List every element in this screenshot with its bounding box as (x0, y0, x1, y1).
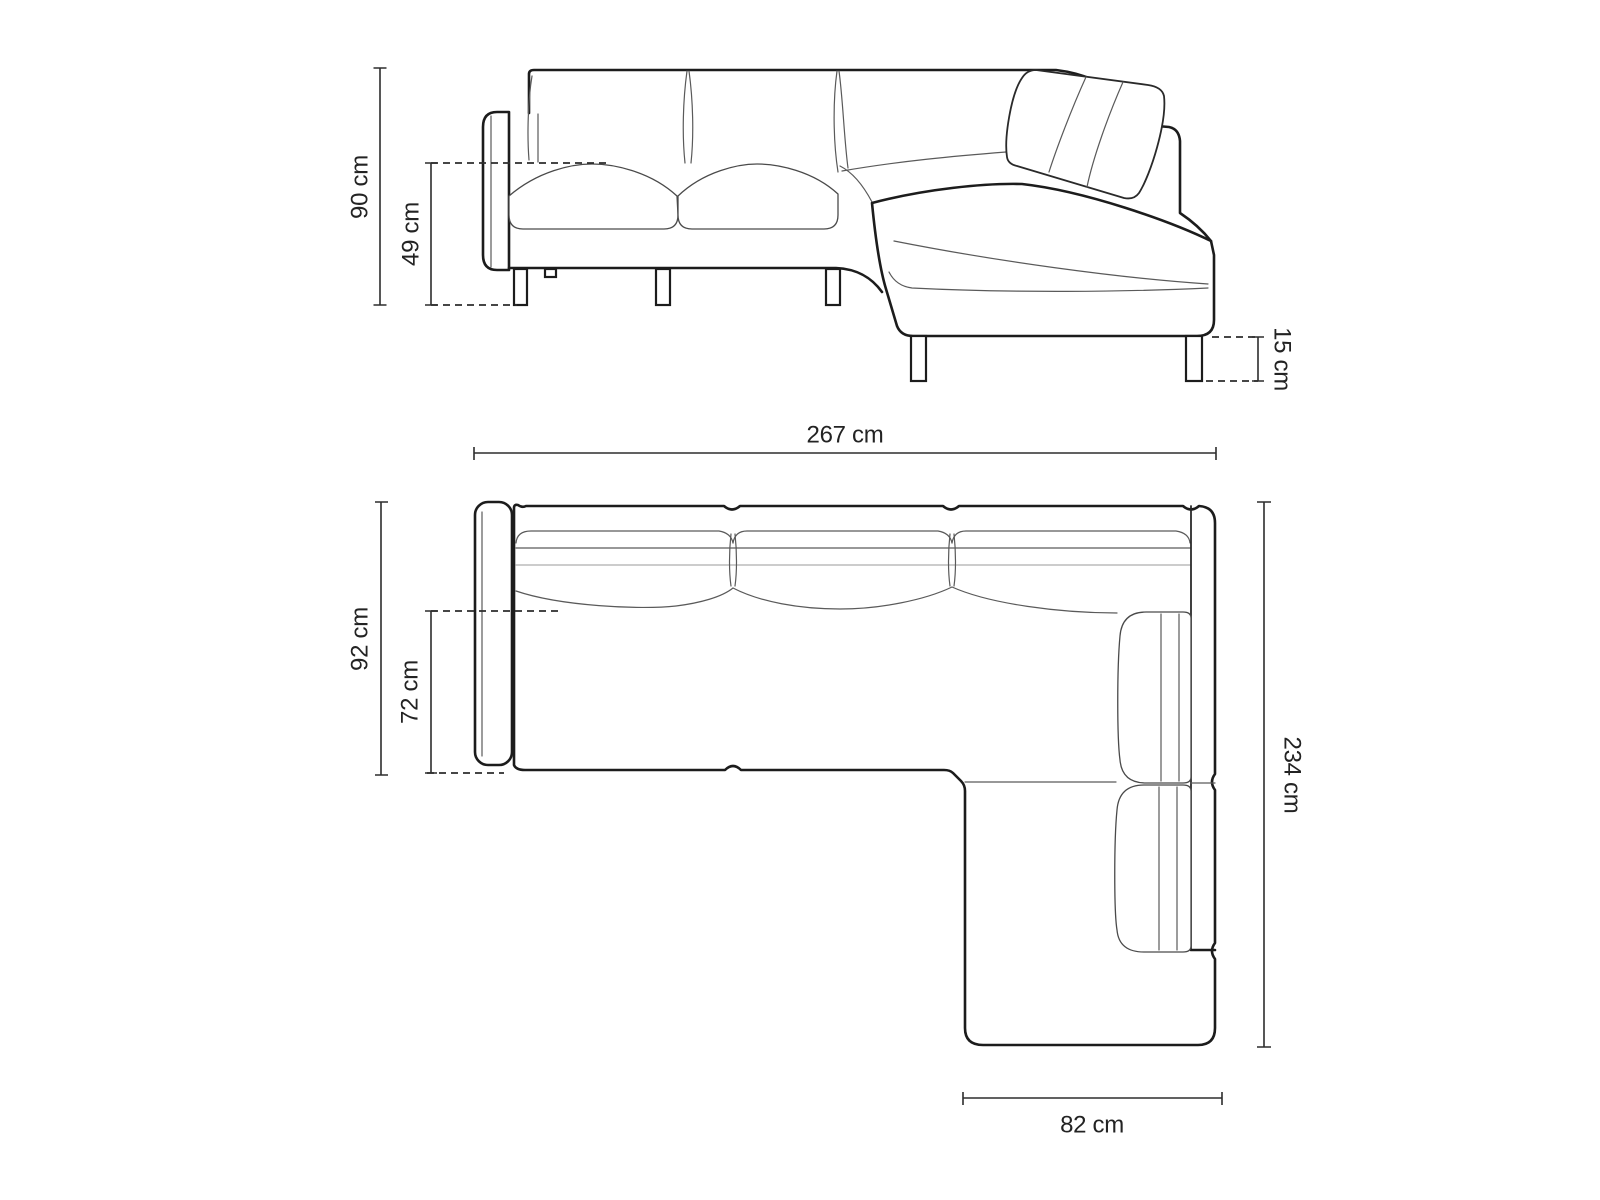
dimension-line (474, 447, 1216, 460)
dimension-label-seat-height: 49 cm (397, 202, 424, 266)
diagram-canvas: 90 cm 49 cm 15 cm 267 cm 92 cm 72 cm 234… (0, 0, 1600, 1200)
front-back-cushion-divider (834, 71, 838, 172)
top-body-outline (514, 505, 1215, 1045)
front-leg (826, 269, 840, 305)
top-back-cushion-front (516, 588, 733, 607)
dimension-line (1252, 337, 1264, 381)
front-corner-deck-curve (840, 166, 872, 202)
front-seat-cushion-middle (678, 164, 838, 229)
top-back-cushion-top (952, 531, 1190, 543)
dimension-label-leg-height: 15 cm (1269, 327, 1296, 391)
dimension-label-total-height: 90 cm (346, 155, 373, 219)
dimension-label-chaise-width: 82 cm (1060, 1111, 1124, 1138)
dimension-label-seat-depth: 72 cm (396, 660, 423, 724)
front-leg (514, 269, 527, 305)
front-view (483, 70, 1214, 381)
top-chaise-back-cushion (1115, 785, 1191, 952)
dimension-label-side-depth: 92 cm (346, 607, 373, 671)
dimension-line (1257, 502, 1271, 1047)
top-left-armrest (475, 502, 512, 765)
top-back-cushion-divider (730, 534, 732, 586)
dimension-top-total-width: 267 cm (474, 421, 1216, 460)
top-back-cushion-divider (954, 534, 956, 586)
dimension-line (425, 611, 437, 773)
front-corner-deck-curve (842, 152, 1006, 171)
front-back-pillow (1006, 70, 1164, 198)
dimension-line (374, 68, 387, 305)
sofa-dimension-diagram: 90 cm 49 cm 15 cm 267 cm 92 cm 72 cm 234… (0, 0, 1600, 1200)
front-back-cushion-divider (683, 71, 687, 163)
front-seat-cushion-left (509, 164, 678, 229)
top-back-cushion-top (516, 531, 733, 543)
front-back-cushion-divider (839, 71, 848, 168)
dimension-front-total-height: 90 cm (346, 68, 386, 305)
front-rear-leg (545, 269, 556, 277)
top-back-cushion-front (733, 587, 952, 609)
dimension-front-leg-height: 15 cm (1206, 327, 1296, 391)
dimension-line (375, 502, 388, 775)
top-right-back-cushion (1118, 612, 1191, 783)
dimension-top-total-depth: 234 cm (1257, 502, 1306, 1047)
front-left-armrest (483, 112, 509, 270)
top-back-cushion-divider (949, 534, 951, 586)
top-back-cushion-top (733, 531, 952, 543)
dimension-line (963, 1092, 1222, 1105)
top-back-cushion-divider (735, 534, 737, 586)
front-leg (656, 269, 670, 305)
dimension-top-chaise-width: 82 cm (963, 1092, 1222, 1138)
dimension-line (425, 163, 437, 305)
front-chaise-body (872, 184, 1214, 336)
top-back-cushion-front (952, 587, 1117, 613)
front-chaise-leg (911, 336, 926, 381)
dimension-label-total-width: 267 cm (807, 421, 884, 448)
dimension-top-side-depth: 92 cm (346, 502, 388, 775)
front-back-cushion-divider (689, 71, 693, 163)
top-view (475, 502, 1215, 1045)
front-chaise-leg (1186, 336, 1202, 381)
dimension-label-total-depth: 234 cm (1279, 737, 1306, 814)
